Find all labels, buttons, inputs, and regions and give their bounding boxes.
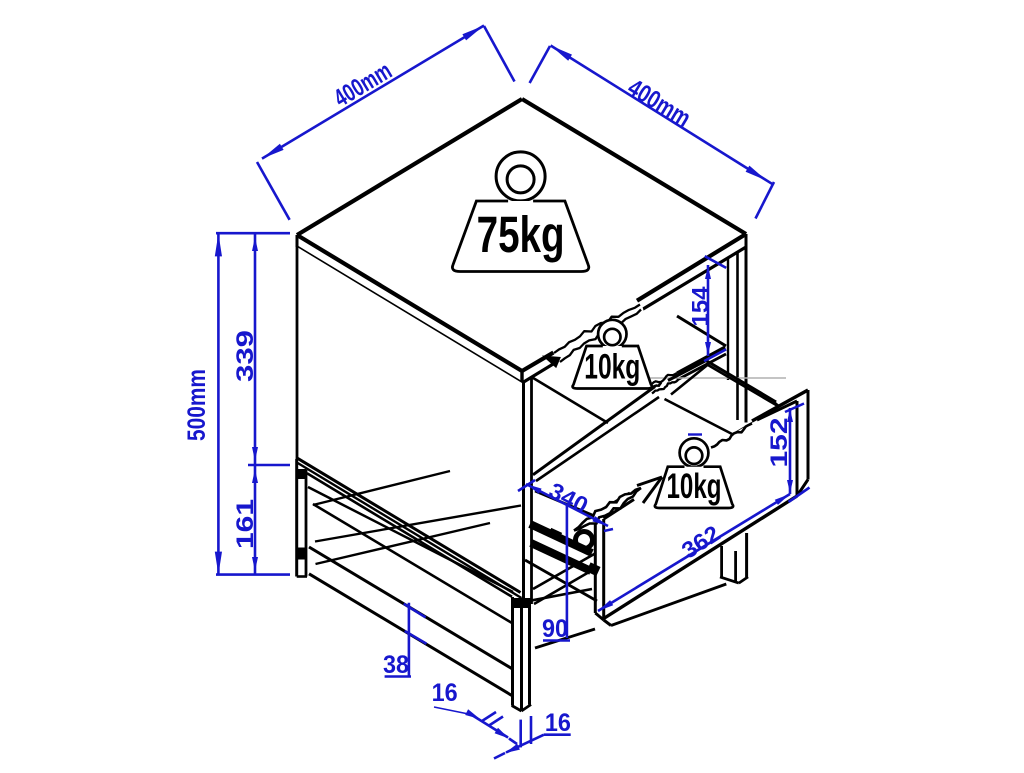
svg-text:10kg: 10kg <box>584 348 640 387</box>
svg-text:154: 154 <box>687 286 713 326</box>
svg-text:38: 38 <box>383 651 409 679</box>
svg-text:16: 16 <box>545 709 571 737</box>
svg-text:500mm: 500mm <box>183 369 211 441</box>
svg-text:16: 16 <box>432 679 458 707</box>
svg-text:339: 339 <box>232 330 259 382</box>
svg-text:90: 90 <box>542 615 568 643</box>
svg-text:10kg: 10kg <box>667 467 722 506</box>
svg-text:75kg: 75kg <box>477 206 565 263</box>
svg-text:161: 161 <box>232 499 259 549</box>
svg-text:152: 152 <box>766 418 793 468</box>
